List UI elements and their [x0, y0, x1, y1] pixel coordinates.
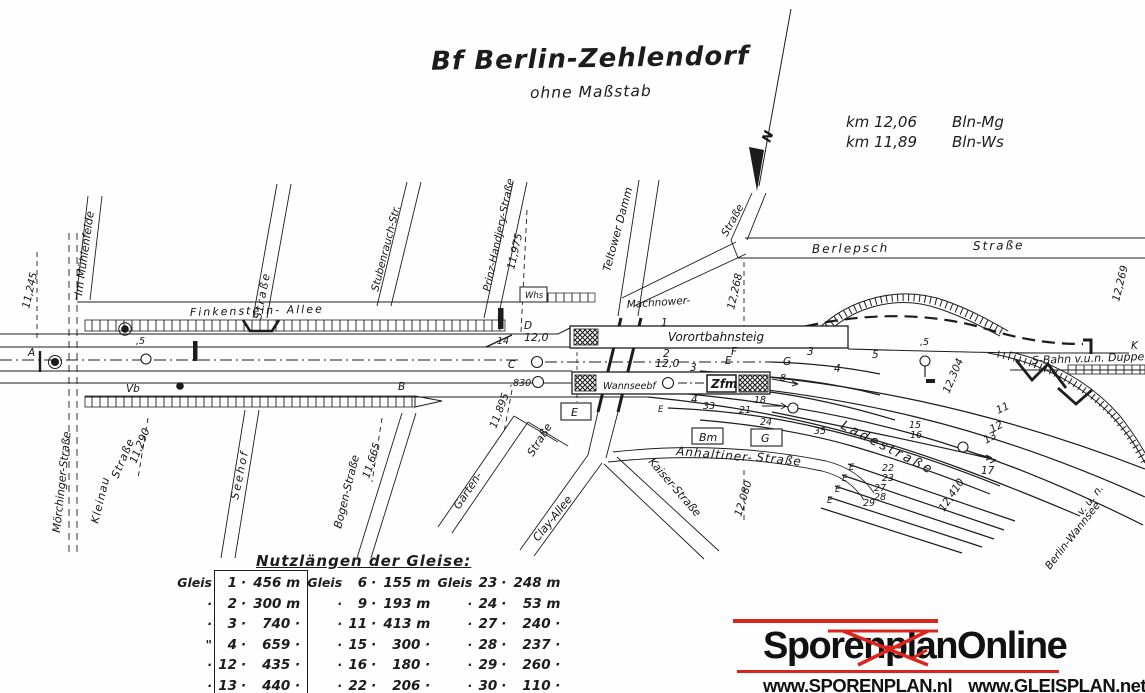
separator: · [371, 656, 376, 676]
street-label-finkenstein-allee: Finkenstein- Allee [190, 302, 324, 319]
separator: · [371, 574, 376, 594]
length-value: 413 m [380, 615, 430, 635]
table-row: "4·659 · [176, 635, 300, 656]
scanned-track-plan: N Im Mühlenfelde Mörchinger-Straße Klein… [0, 0, 1145, 693]
street-label-stubenrauch-str: Stubenrauch-Str. [369, 204, 403, 293]
street-label-berlepsch-strasse: Straße [973, 238, 1025, 253]
label-direction-berlin-wannsee: Berlin-Wannsee [1043, 500, 1103, 572]
label-wannseebf: Wannseebf [603, 381, 657, 392]
signal-label-vb: Vb [126, 383, 140, 395]
separator: · [241, 574, 246, 594]
sporenplan-logo: SporenplanOnline www.SPORENPLAN.nl www.G… [733, 617, 1145, 693]
km-legend-row: km 11,89 Bln-Ws [846, 132, 1004, 152]
label-vorortbahnsteig: Vorortbahnsteig [668, 330, 765, 344]
track-number-4-east: 4 [834, 363, 841, 375]
track-no: 30 [477, 677, 497, 693]
row-prefix: · [306, 614, 347, 634]
logo-red-rule [737, 670, 1059, 673]
row-prefix: · [176, 594, 217, 614]
separator: · [241, 677, 246, 693]
switch-number-18: 18 [754, 395, 766, 406]
switch-number-8: 8 [780, 373, 786, 384]
track-no: 11 [347, 615, 367, 635]
table-row: ·3·740 · [176, 614, 300, 635]
track-end-marker-2: E [842, 474, 848, 484]
table-row: ·15·300 · [306, 635, 430, 656]
separator: · [501, 595, 506, 615]
table-columns: Gleis1·456 m ·2·300 m ·3·740 · "4·659 · … [176, 573, 564, 693]
row-prefix: · [306, 655, 347, 675]
km-legend: km 12,06 Bln-Mg km 11,89 Bln-Ws [846, 112, 1004, 152]
street-label-prinz-handjery-strasse: Prinz-Handjery-Straße [481, 178, 517, 293]
signal-label-k: K [1131, 340, 1139, 352]
table-row: Gleis23·248 m [436, 573, 560, 594]
km-dest-mg: Bln-Mg [952, 112, 1004, 132]
street-label-im-muehlenfelde: Im Mühlenfelde [72, 210, 97, 296]
length-value: 237 · [510, 636, 560, 656]
km-value-ws: km 11,89 [846, 132, 922, 152]
track-no: 6 [347, 574, 367, 594]
street-label-clay-allee: Clay-Allee [530, 493, 575, 544]
signal-label-g: G [783, 356, 791, 368]
street-label-bogen-strasse: Bogen-Straße [331, 453, 362, 529]
table-row: ·30·110 · [436, 676, 560, 693]
track-number-24: 24 [760, 417, 772, 428]
track-end-marker-3: E [835, 485, 841, 495]
row-prefix: · [176, 614, 217, 634]
table-row: ·16·180 · [306, 655, 430, 676]
separator: · [241, 656, 246, 676]
switch-number-33: 33 [703, 401, 715, 412]
length-value: 53 m [510, 595, 560, 615]
street-label-machnower: Machnower- [626, 295, 690, 311]
length-value: 240 · [510, 615, 560, 635]
track-no: 4 [217, 636, 237, 656]
km-value-mg: km 12,06 [846, 112, 922, 132]
table-row: Gleis6·155 m [306, 573, 430, 594]
track-no: 9 [347, 595, 367, 615]
street-label-strasse-northeast: Straße [719, 202, 746, 238]
row-prefix: " [176, 635, 217, 655]
street-label-anhaltiner-strasse: Straße [756, 450, 803, 469]
km-mark-12269: 12,269 [1110, 264, 1131, 303]
track-number-3: 3 [690, 362, 697, 374]
row-prefix: · [306, 594, 347, 614]
row-prefix: · [436, 594, 477, 614]
north-arrow-label: N [760, 129, 778, 144]
length-value: 440 · [250, 677, 300, 693]
label-bm-box: Bm [699, 431, 717, 444]
signal-label-a: A [27, 347, 35, 359]
logo-urls: www.SPORENPLAN.nl www.GLEISPLAN.net [763, 675, 1145, 693]
length-value: 300 · [380, 636, 430, 656]
separator: · [241, 615, 246, 635]
separator: · [501, 574, 506, 594]
label-sbahn-dueppel: S-Bahn v.u.n. Düppel [1032, 350, 1145, 367]
length-value: 456 m [250, 574, 300, 594]
track-number-2: 2 [663, 348, 670, 360]
km-mark-12410: 12,410 [937, 476, 968, 513]
length-value: 659 · [250, 636, 300, 656]
track-no: 12 [217, 656, 237, 676]
table-column-1: Gleis1·456 m ·2·300 m ·3·740 · "4·659 · … [176, 573, 300, 693]
length-value: 260 · [510, 656, 560, 676]
track-no: 27 [477, 615, 497, 635]
length-value: 435 · [250, 656, 300, 676]
track-no: 22 [347, 677, 367, 693]
table-row: ·24·53 m [436, 594, 560, 615]
street-label-berlepsch: Berlepsch [812, 241, 890, 256]
km-mark-12268: 12,268 [725, 272, 745, 311]
row-prefix: · [176, 655, 217, 675]
separator: · [501, 677, 506, 693]
street-label-garten: Garten- [451, 470, 485, 512]
table-row: ·9·193 m [306, 594, 430, 615]
platforms-and-boxes [520, 287, 848, 446]
track-no: 28 [477, 636, 497, 656]
track-number-17: 17 [981, 465, 995, 477]
track-no: 29 [477, 656, 497, 676]
row-prefix: · [306, 676, 347, 693]
mark-5-west: ,5 [136, 336, 145, 347]
track-number-11: 11 [994, 400, 1011, 417]
row-prefix: Gleis [176, 573, 217, 593]
row-prefix: Gleis [306, 573, 347, 593]
track-number-1: 1 [661, 317, 668, 329]
length-value: 300 m [250, 595, 300, 615]
km-mark-12080: 12,080 [732, 479, 754, 518]
label-e-box: E [571, 406, 578, 419]
separator: · [501, 615, 506, 635]
signal-label-c: C [508, 359, 516, 371]
label-zfm-box: Zfm [710, 377, 737, 391]
track-number-4: 4 [691, 394, 698, 406]
table-row: ·28·237 · [436, 635, 560, 656]
signal-label-b: B [398, 381, 405, 393]
separator: · [371, 595, 376, 615]
separator: · [371, 677, 376, 693]
km-dest-ws: Bln-Ws [952, 132, 1004, 152]
track-no: 1 [217, 574, 237, 594]
logo-url-sporenplan[interactable]: www.SPORENPLAN.nl [763, 675, 952, 693]
length-value: 180 · [380, 656, 430, 676]
label-g-box: G [761, 432, 770, 445]
km-legend-row: km 12,06 Bln-Mg [846, 112, 1004, 132]
table-column-2: Gleis6·155 m ·9·193 m ·11·413 m ·15·300 … [306, 573, 430, 693]
switch-number-14: 14 [497, 336, 509, 347]
logo-track-glyph [733, 617, 938, 669]
switch-number-35: 35 [814, 426, 826, 437]
track-no: 3 [217, 615, 237, 635]
mark-5-east: ,5 [920, 337, 929, 348]
table-row: ·29·260 · [436, 655, 560, 676]
map-title-block: Bf Berlin-Zehlendorf ohne Maßstab [418, 41, 764, 104]
km-mark-11665: 11,665 [360, 441, 383, 480]
row-prefix: · [176, 676, 217, 693]
useful-lengths-table: Nutzlängen der Gleise: Gleis1·456 m ·2·3… [176, 552, 564, 693]
street-lines-northeast [622, 193, 1145, 346]
row-prefix: Gleis [436, 573, 477, 593]
table-title: Nutzlängen der Gleise: [256, 552, 564, 570]
km-mark-12304: 12,304 [941, 357, 966, 396]
length-value: 740 · [250, 615, 300, 635]
track-number-29: 29 [863, 498, 875, 509]
track-end-marker-4: E [827, 496, 833, 506]
street-label-seehof: Seehof [228, 449, 251, 501]
row-prefix: · [436, 614, 477, 634]
separator: · [241, 595, 246, 615]
table-row: ·11·413 m [306, 614, 430, 635]
separator: · [501, 656, 506, 676]
track-number-3-east: 3 [807, 346, 814, 358]
track-number-21: 21 [739, 405, 751, 416]
table-row: ·22·206 · [306, 676, 430, 693]
gauge-12-0-west: 12,0 [524, 331, 549, 344]
table-row: ·12·435 · [176, 655, 300, 676]
table-row: ·27·240 · [436, 614, 560, 635]
length-value: 155 m [380, 574, 430, 594]
track-no: 2 [217, 595, 237, 615]
table-row: ·2·300 m [176, 594, 300, 615]
km-mark-11975: 11,975 [505, 232, 525, 271]
track-number-5: 5 [872, 349, 879, 361]
track-no: 16 [347, 656, 367, 676]
row-prefix: · [436, 655, 477, 675]
length-value: 248 m [510, 574, 560, 594]
length-value: 110 · [510, 677, 560, 693]
signal-label-f: F [731, 346, 738, 358]
row-prefix: · [306, 635, 347, 655]
length-value: 193 m [380, 595, 430, 615]
track-end-marker-west: E [658, 405, 664, 415]
map-title: Bf Berlin-Zehlendorf [418, 41, 763, 77]
label-whs-box: Whs [525, 291, 544, 301]
track-number-16: 16 [910, 430, 922, 441]
track-end-marker-1: E [849, 463, 855, 473]
length-value: 206 · [380, 677, 430, 693]
track-no: 24 [477, 595, 497, 615]
track-no: 13 [217, 677, 237, 693]
separator: · [371, 615, 376, 635]
table-row: ·13·440 · [176, 676, 300, 693]
mark-830: ,830 [510, 378, 531, 389]
street-label-anhaltiner: Anhaltiner- [675, 444, 754, 465]
separator: · [241, 636, 246, 656]
track-no: 23 [477, 574, 497, 594]
street-label-teltower-damm: Teltower Damm [600, 186, 635, 273]
row-prefix: · [436, 635, 477, 655]
track-no: 15 [347, 636, 367, 656]
table-row: Gleis1·456 m [176, 573, 300, 594]
street-label-moerchinger-strasse: Mörchinger-Straße [50, 431, 74, 534]
row-prefix: · [436, 676, 477, 693]
separator: · [371, 636, 376, 656]
street-label-kleinau: Kleinau [88, 475, 112, 525]
table-column-3: Gleis23·248 m ·24·53 m ·27·240 · ·28·237… [436, 573, 560, 693]
logo-url-gleisplan[interactable]: www.GLEISPLAN.net [968, 675, 1145, 693]
separator: · [501, 636, 506, 656]
north-arrow [749, 9, 791, 191]
track-number-28: 28 [874, 492, 886, 503]
street-label-garten-strasse: Straße [525, 421, 555, 459]
